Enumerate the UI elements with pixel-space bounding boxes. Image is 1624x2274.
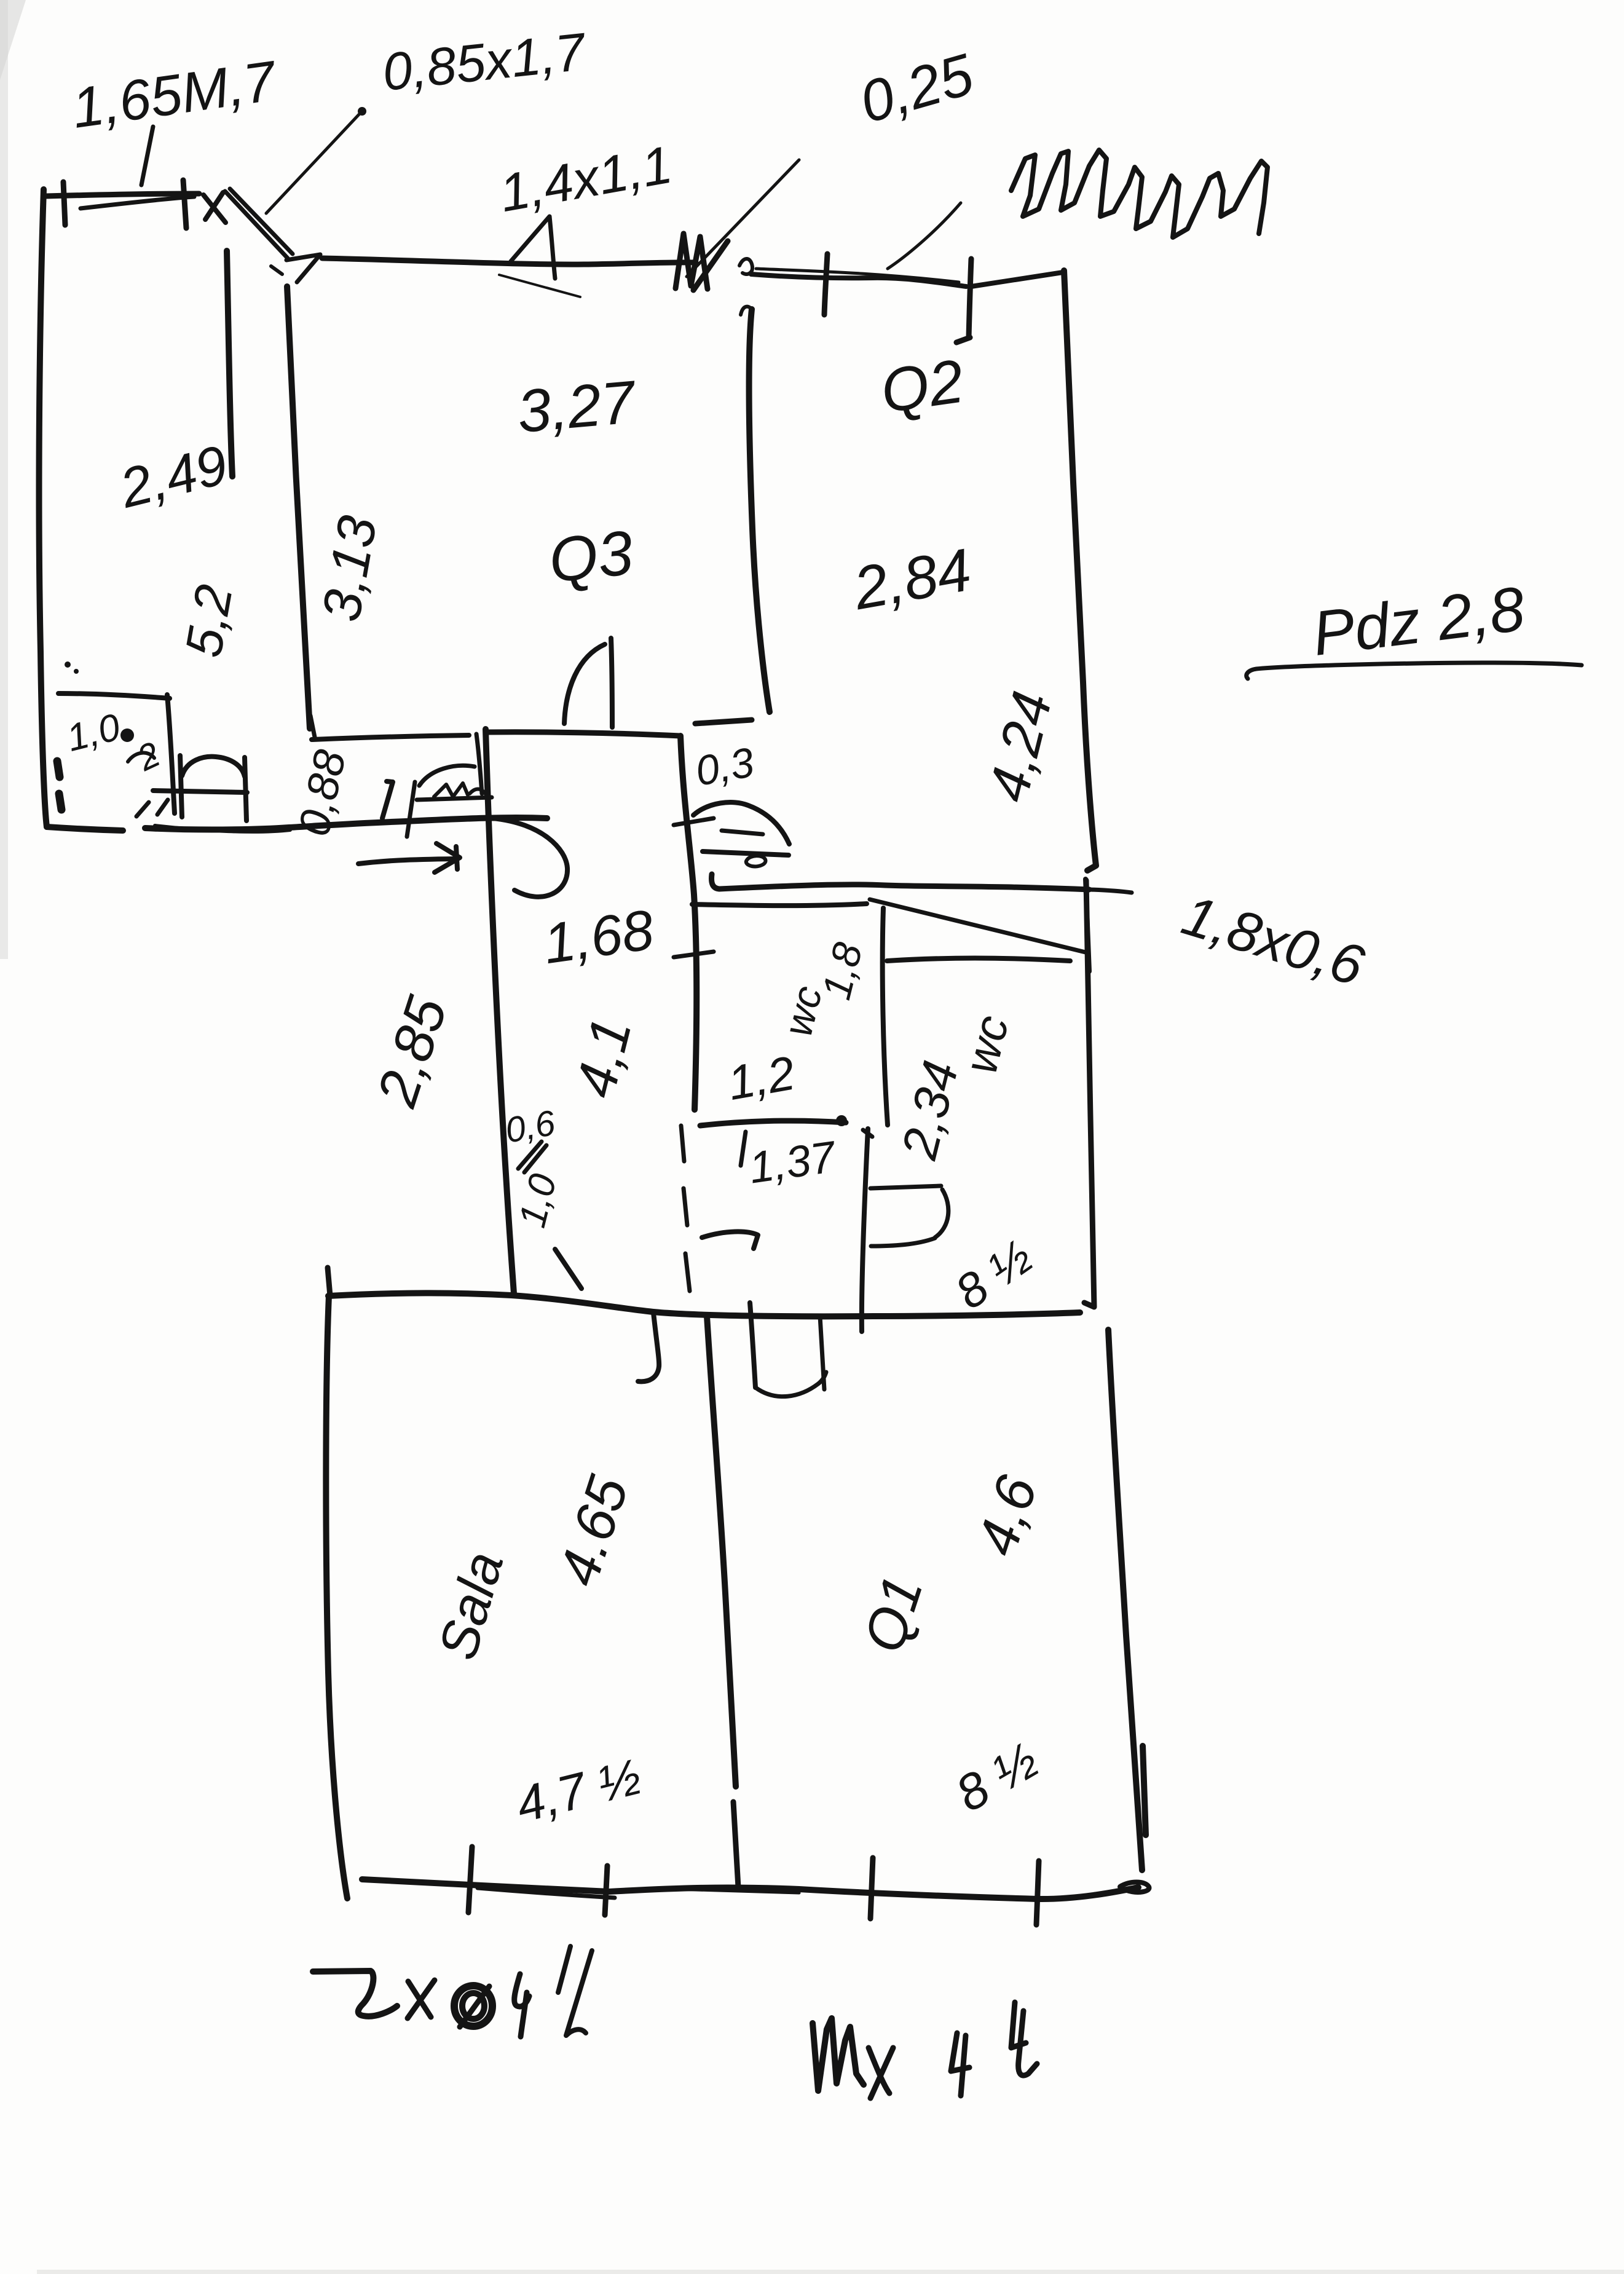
svg-text:3,27: 3,27 [514, 368, 639, 446]
svg-text:1,2: 1,2 [723, 1046, 798, 1110]
svg-text:0,3: 0,3 [692, 739, 757, 795]
svg-text:Q3: Q3 [546, 517, 636, 596]
svg-text:Q2: Q2 [877, 347, 968, 426]
svg-text:0,6: 0,6 [502, 1103, 558, 1151]
svg-text:5,2: 5,2 [174, 580, 243, 661]
